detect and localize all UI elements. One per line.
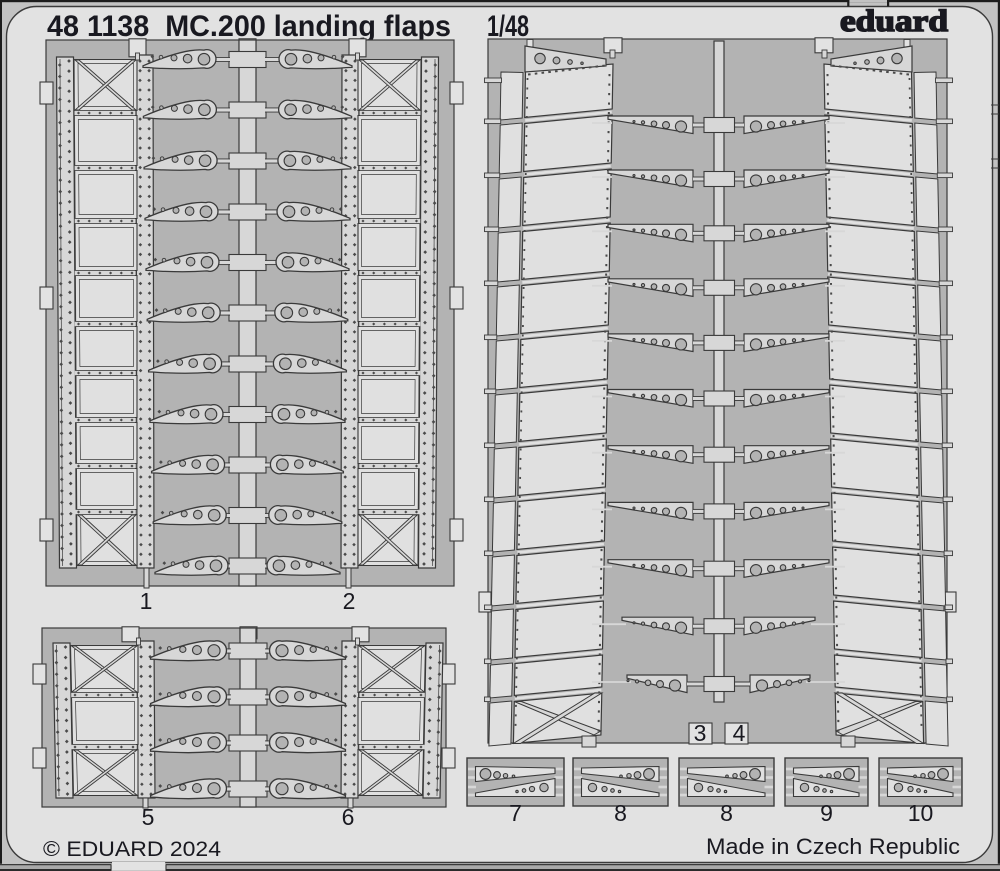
svg-text:1/48: 1/48: [487, 10, 529, 43]
svg-text:2: 2: [343, 588, 356, 614]
svg-text:© EDUARD 2024: © EDUARD 2024: [43, 838, 221, 861]
svg-text:3: 3: [694, 720, 707, 746]
svg-text:10: 10: [908, 800, 934, 826]
svg-text:7: 7: [509, 800, 522, 826]
svg-text:8: 8: [614, 800, 627, 826]
svg-text:eduard: eduard: [840, 3, 948, 38]
svg-text:9: 9: [820, 800, 833, 826]
svg-text:6: 6: [342, 804, 355, 830]
svg-text:Made in Czech Republic: Made in Czech Republic: [706, 834, 960, 859]
svg-text:4: 4: [733, 720, 746, 746]
svg-text:8: 8: [720, 800, 733, 826]
svg-text:48 1138 MC.200 landing flaps: 48 1138 MC.200 landing flaps: [47, 10, 451, 43]
svg-text:5: 5: [142, 804, 155, 830]
svg-text:1: 1: [140, 588, 153, 614]
